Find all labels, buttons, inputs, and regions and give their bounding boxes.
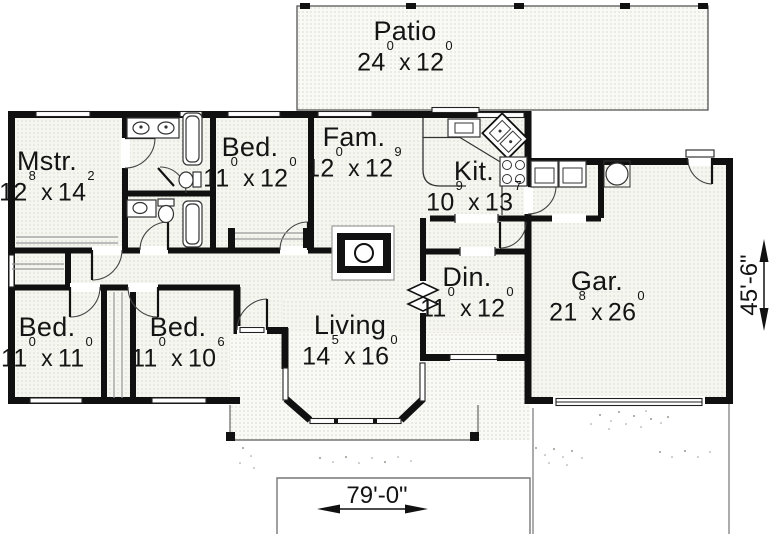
room-label-bed-top: Bed. 110x120 <box>203 134 297 191</box>
dim-a: 12 <box>306 154 334 182</box>
room-dimensions: 120x129 <box>306 156 402 182</box>
room-name: Living <box>302 312 398 340</box>
garage-door <box>556 399 702 406</box>
dim-a-sup: 0 <box>336 144 344 159</box>
dim-a: 24 <box>357 48 385 76</box>
dim-b: 12 <box>365 154 393 182</box>
dim-b-sup: 0 <box>85 334 93 349</box>
dim-times: x <box>399 49 411 75</box>
dim-b: 10 <box>188 344 216 372</box>
sink-icon <box>133 203 147 214</box>
dim-a-sup: 0 <box>159 334 167 349</box>
room-name: Bed. <box>1 314 93 342</box>
dim-a-sup: 0 <box>231 154 239 169</box>
toilet-tank <box>193 172 201 187</box>
room-label-bed-mid: Bed. 110x106 <box>131 314 225 371</box>
dim-times: x <box>468 189 480 215</box>
fireplace-icon <box>332 226 394 280</box>
room-name: Kit. <box>426 158 522 186</box>
dim-b-sup: 0 <box>390 332 398 347</box>
dim-a: 11 <box>420 294 447 322</box>
room-dimensions: 110x120 <box>203 166 297 192</box>
room-dimensions: 109x137 <box>426 190 522 216</box>
floorplan-drawing <box>0 0 770 534</box>
dim-a: 12 <box>0 178 28 206</box>
dim-b-sup: 0 <box>637 288 645 303</box>
floor-plan-canvas: Patio 240x120 Mstr. 128x142 Bed. 110x120… <box>0 0 770 534</box>
room-dimensions: 110x110 <box>1 346 93 372</box>
room-label-gar: Gar. 218x260 <box>549 268 645 325</box>
room-name: Fam. <box>306 124 402 152</box>
room-label-bed-left: Bed. 110x110 <box>1 314 93 371</box>
dim-times: x <box>171 345 183 371</box>
dim-a-sup: 0 <box>448 284 456 299</box>
dim-b-sup: 0 <box>289 154 297 169</box>
kitchen-sink-icon <box>482 113 527 158</box>
water-heater-icon <box>606 163 628 185</box>
dim-b: 13 <box>485 188 513 216</box>
room-dimensions: 110x106 <box>131 346 225 372</box>
dim-times: x <box>243 165 255 191</box>
room-dimensions: 240x120 <box>357 50 453 76</box>
room-label-patio: Patio 240x120 <box>357 18 453 75</box>
dim-times: x <box>591 299 603 325</box>
laundry-fixtures <box>531 161 630 187</box>
dim-a: 11 <box>131 344 158 372</box>
room-label-kit: Kit. 109x137 <box>426 158 522 215</box>
dim-times: x <box>460 295 472 321</box>
dim-a: 21 <box>549 298 577 326</box>
wall-oven <box>448 119 480 137</box>
dim-a-sup: 5 <box>332 332 340 347</box>
toilet-icon <box>179 172 193 188</box>
overall-width-dimension: 79'-0" <box>346 482 407 510</box>
dim-b-sup: 0 <box>445 38 453 53</box>
dim-a: 10 <box>426 188 454 216</box>
dim-a-sup: 8 <box>579 288 587 303</box>
dim-a-sup: 8 <box>29 168 37 183</box>
room-label-fam: Fam. 120x129 <box>306 124 402 181</box>
dim-b-sup: 0 <box>506 284 514 299</box>
dim-b: 12 <box>260 164 288 192</box>
room-name: Gar. <box>549 268 645 296</box>
dim-b: 11 <box>58 344 85 372</box>
room-label-living: Living 145x160 <box>302 312 398 369</box>
toilet-icon <box>159 206 174 223</box>
dim-a-sup: 0 <box>387 38 395 53</box>
dim-times: x <box>41 179 53 205</box>
dim-b: 16 <box>361 342 389 370</box>
hall-bath-fixtures <box>127 199 202 247</box>
room-dimensions: 110x120 <box>420 296 514 322</box>
room-dimensions: 128x142 <box>0 180 95 206</box>
dim-times: x <box>41 345 53 371</box>
dim-b-sup: 2 <box>87 168 95 183</box>
dim-b-sup: 7 <box>514 178 522 193</box>
dim-a: 11 <box>1 344 28 372</box>
dim-a-sup: 0 <box>29 334 37 349</box>
room-name: Bed. <box>131 314 225 342</box>
dim-times: x <box>348 155 360 181</box>
room-dimensions: 145x160 <box>302 344 398 370</box>
room-name: Din. <box>420 264 514 292</box>
driveway <box>533 404 729 534</box>
dim-b: 12 <box>477 294 505 322</box>
room-name: Mstr. <box>0 148 95 176</box>
dim-b: 14 <box>58 178 86 206</box>
dim-b: 26 <box>608 298 636 326</box>
room-label-din: Din. 110x120 <box>420 264 514 321</box>
room-label-mstr: Mstr. 128x142 <box>0 148 95 205</box>
dim-times: x <box>344 343 356 369</box>
overall-height-dimension: 45'-6" <box>736 254 764 315</box>
closet-end-stubs <box>228 228 310 248</box>
room-dimensions: 218x260 <box>549 300 645 326</box>
dim-b: 12 <box>416 48 444 76</box>
dim-a: 11 <box>203 164 230 192</box>
room-name: Bed. <box>203 134 297 162</box>
room-name: Patio <box>357 18 453 46</box>
dim-a-sup: 9 <box>456 178 464 193</box>
dim-b-sup: 6 <box>217 334 225 349</box>
dim-b-sup: 9 <box>394 144 402 159</box>
dim-a: 14 <box>302 342 330 370</box>
